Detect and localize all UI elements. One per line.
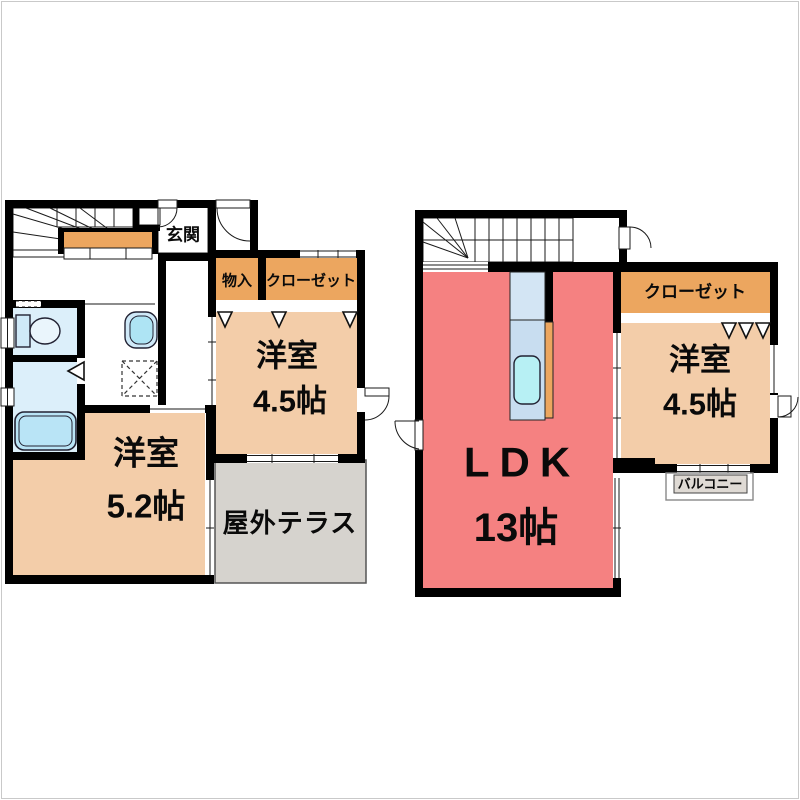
bath-side-window xyxy=(1,388,14,406)
ldk-name: LDK xyxy=(464,439,580,486)
terrace-label: 屋外テラス xyxy=(223,508,357,538)
room-right-window-2f xyxy=(770,345,778,393)
room-door-2f xyxy=(770,395,798,418)
ldk-room-sliding-door xyxy=(613,333,621,458)
toilet-top-window xyxy=(16,301,41,307)
room2-sliding-door xyxy=(150,405,205,413)
understair-strip-1f xyxy=(58,228,158,259)
washbasin xyxy=(125,312,157,348)
room2-side-window xyxy=(206,480,214,575)
balcony-window xyxy=(677,464,750,473)
terrace-window xyxy=(247,454,338,463)
toilet-side-window xyxy=(1,318,14,348)
closet-label-1f: クローゼット xyxy=(266,272,356,290)
bathtub xyxy=(15,412,76,450)
room2-size-1f: 5.2帖 xyxy=(107,488,186,525)
room-name-2f: 洋室 xyxy=(669,343,731,378)
room1-name-1f: 洋室 xyxy=(256,339,318,374)
balcony-label: バルコニー xyxy=(678,477,743,492)
floor-plan-svg: 玄関 物入 クローゼット 洋室 4.5帖 洋室 5.2帖 屋外テラス xyxy=(0,0,800,800)
hall-door xyxy=(158,200,177,208)
stairs-landing-strip xyxy=(423,262,488,272)
stairs-upper-box-1f xyxy=(139,208,160,225)
floor2-plan: バルコニー LDK 13帖 クローゼット 洋室 4.5帖 xyxy=(395,210,798,597)
balcony: バルコニー xyxy=(666,473,753,500)
floor-plan-canvas: 玄関 物入 クローゼット 洋室 4.5帖 洋室 5.2帖 屋外テラス xyxy=(0,0,800,800)
stairs-lines-2f xyxy=(423,218,573,262)
understair-window xyxy=(64,248,152,259)
stair-hall-door xyxy=(619,227,651,249)
closet-door-band-1f xyxy=(216,300,357,312)
room-size-2f: 4.5帖 xyxy=(663,387,737,422)
kitchen-sink xyxy=(514,356,540,404)
closet-door-band-2f xyxy=(621,313,770,323)
toilet-fixture xyxy=(16,315,60,347)
storage-label: 物入 xyxy=(222,272,252,290)
entrance-door xyxy=(216,200,250,208)
room2-name-1f: 洋室 xyxy=(113,435,179,472)
room1-size-1f: 4.5帖 xyxy=(253,384,327,419)
room1-sliding-door xyxy=(208,317,216,405)
closet-label-2f: クローゼット xyxy=(644,282,746,302)
closet-top-window-1f xyxy=(300,250,356,258)
entrance-label: 玄関 xyxy=(166,225,200,245)
ldk-right-window xyxy=(613,478,621,578)
ldk-side-door xyxy=(395,420,423,450)
counter-upper xyxy=(510,272,545,320)
counter-end xyxy=(545,322,553,418)
floor1-plan: 玄関 物入 クローゼット 洋室 4.5帖 洋室 5.2帖 屋外テラス xyxy=(1,200,389,584)
washroom-door xyxy=(85,300,155,308)
ldk-size: 13帖 xyxy=(474,506,559,550)
